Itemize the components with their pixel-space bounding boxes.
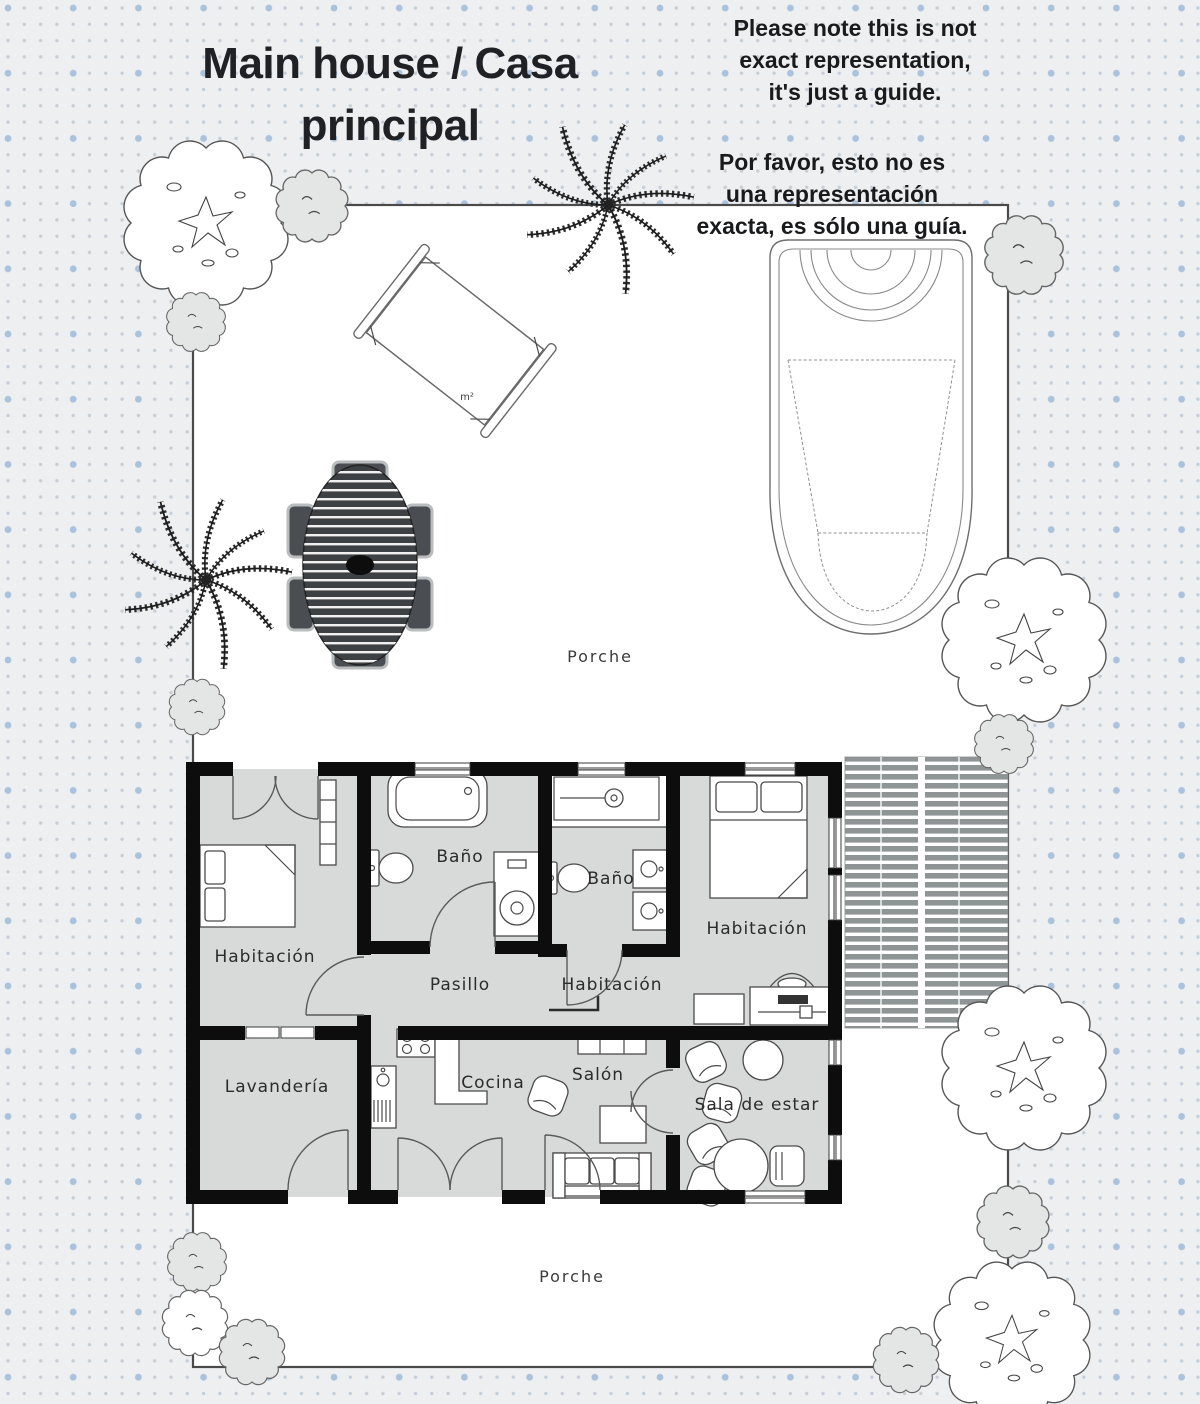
bush-icon <box>219 1319 284 1384</box>
room-label-living: Salón <box>572 1065 624 1085</box>
bush-icon <box>169 679 224 734</box>
note-english: Please note this is not exact representa… <box>734 15 977 105</box>
room-label-bedroom-middle: Habitación <box>561 975 662 995</box>
bed-icon <box>710 776 807 898</box>
room-label-bedroom-left: Habitación <box>214 947 315 967</box>
round-table-icon <box>714 1139 804 1193</box>
hammock-area-label: m² <box>460 392 474 403</box>
bush-icon <box>167 293 226 352</box>
deck <box>845 757 1008 1028</box>
porch-label-bottom: Porche <box>539 1267 605 1286</box>
bathtub-icon <box>388 770 487 827</box>
pool <box>770 240 972 634</box>
tree-right-lower <box>942 986 1106 1150</box>
room-label-sitting: Sala de estar <box>695 1095 820 1115</box>
side-table-icon <box>743 1040 783 1080</box>
kitchen-sink-icon <box>371 1066 396 1128</box>
bush-icon <box>977 1186 1049 1258</box>
svg-text:una representación: una representación <box>726 181 938 207</box>
svg-text:exacta, es sólo una guía.: exacta, es sólo una guía. <box>697 213 968 239</box>
shower-icon <box>546 770 667 827</box>
svg-text:Por favor, esto no es: Por favor, esto no es <box>719 149 945 175</box>
bush-icon <box>985 216 1063 294</box>
coffee-table-icon <box>600 1106 646 1143</box>
tree-bottom-right <box>934 1262 1090 1404</box>
rug-icon <box>694 994 744 1024</box>
room-label-hallway: Pasillo <box>430 975 490 995</box>
bush-icon <box>276 170 348 242</box>
svg-text:it's just a guide.: it's just a guide. <box>769 79 942 105</box>
room-label-bedroom-right: Habitación <box>706 919 807 939</box>
svg-text:Main house / Casa: Main house / Casa <box>202 39 578 88</box>
bush-icon <box>975 715 1034 774</box>
toilet-icon <box>366 850 413 886</box>
svg-text:principal: principal <box>301 101 480 150</box>
bush-icon <box>168 1233 227 1292</box>
bush-icon <box>162 1290 227 1355</box>
bed-icon <box>200 845 295 927</box>
closet-icon <box>320 780 336 865</box>
room-label-kitchen: Cocina <box>461 1073 525 1093</box>
room-label-bath-1: Baño <box>436 847 483 867</box>
floor-plan-canvas: m² <box>0 0 1200 1404</box>
washbasin-icon <box>494 852 540 936</box>
tree-top-left <box>124 141 288 305</box>
tree-right-mid <box>942 558 1106 722</box>
bush-icon <box>873 1327 938 1392</box>
room-label-laundry: Lavandería <box>225 1077 330 1097</box>
porch-label-top: Porche <box>567 647 633 666</box>
svg-text:exact representation,: exact representation, <box>739 47 970 73</box>
note-spanish: Por favor, esto no es una representación… <box>697 149 968 239</box>
room-label-bath-2: Baño <box>587 869 634 889</box>
svg-text:Please note this is not: Please note this is not <box>734 15 977 41</box>
